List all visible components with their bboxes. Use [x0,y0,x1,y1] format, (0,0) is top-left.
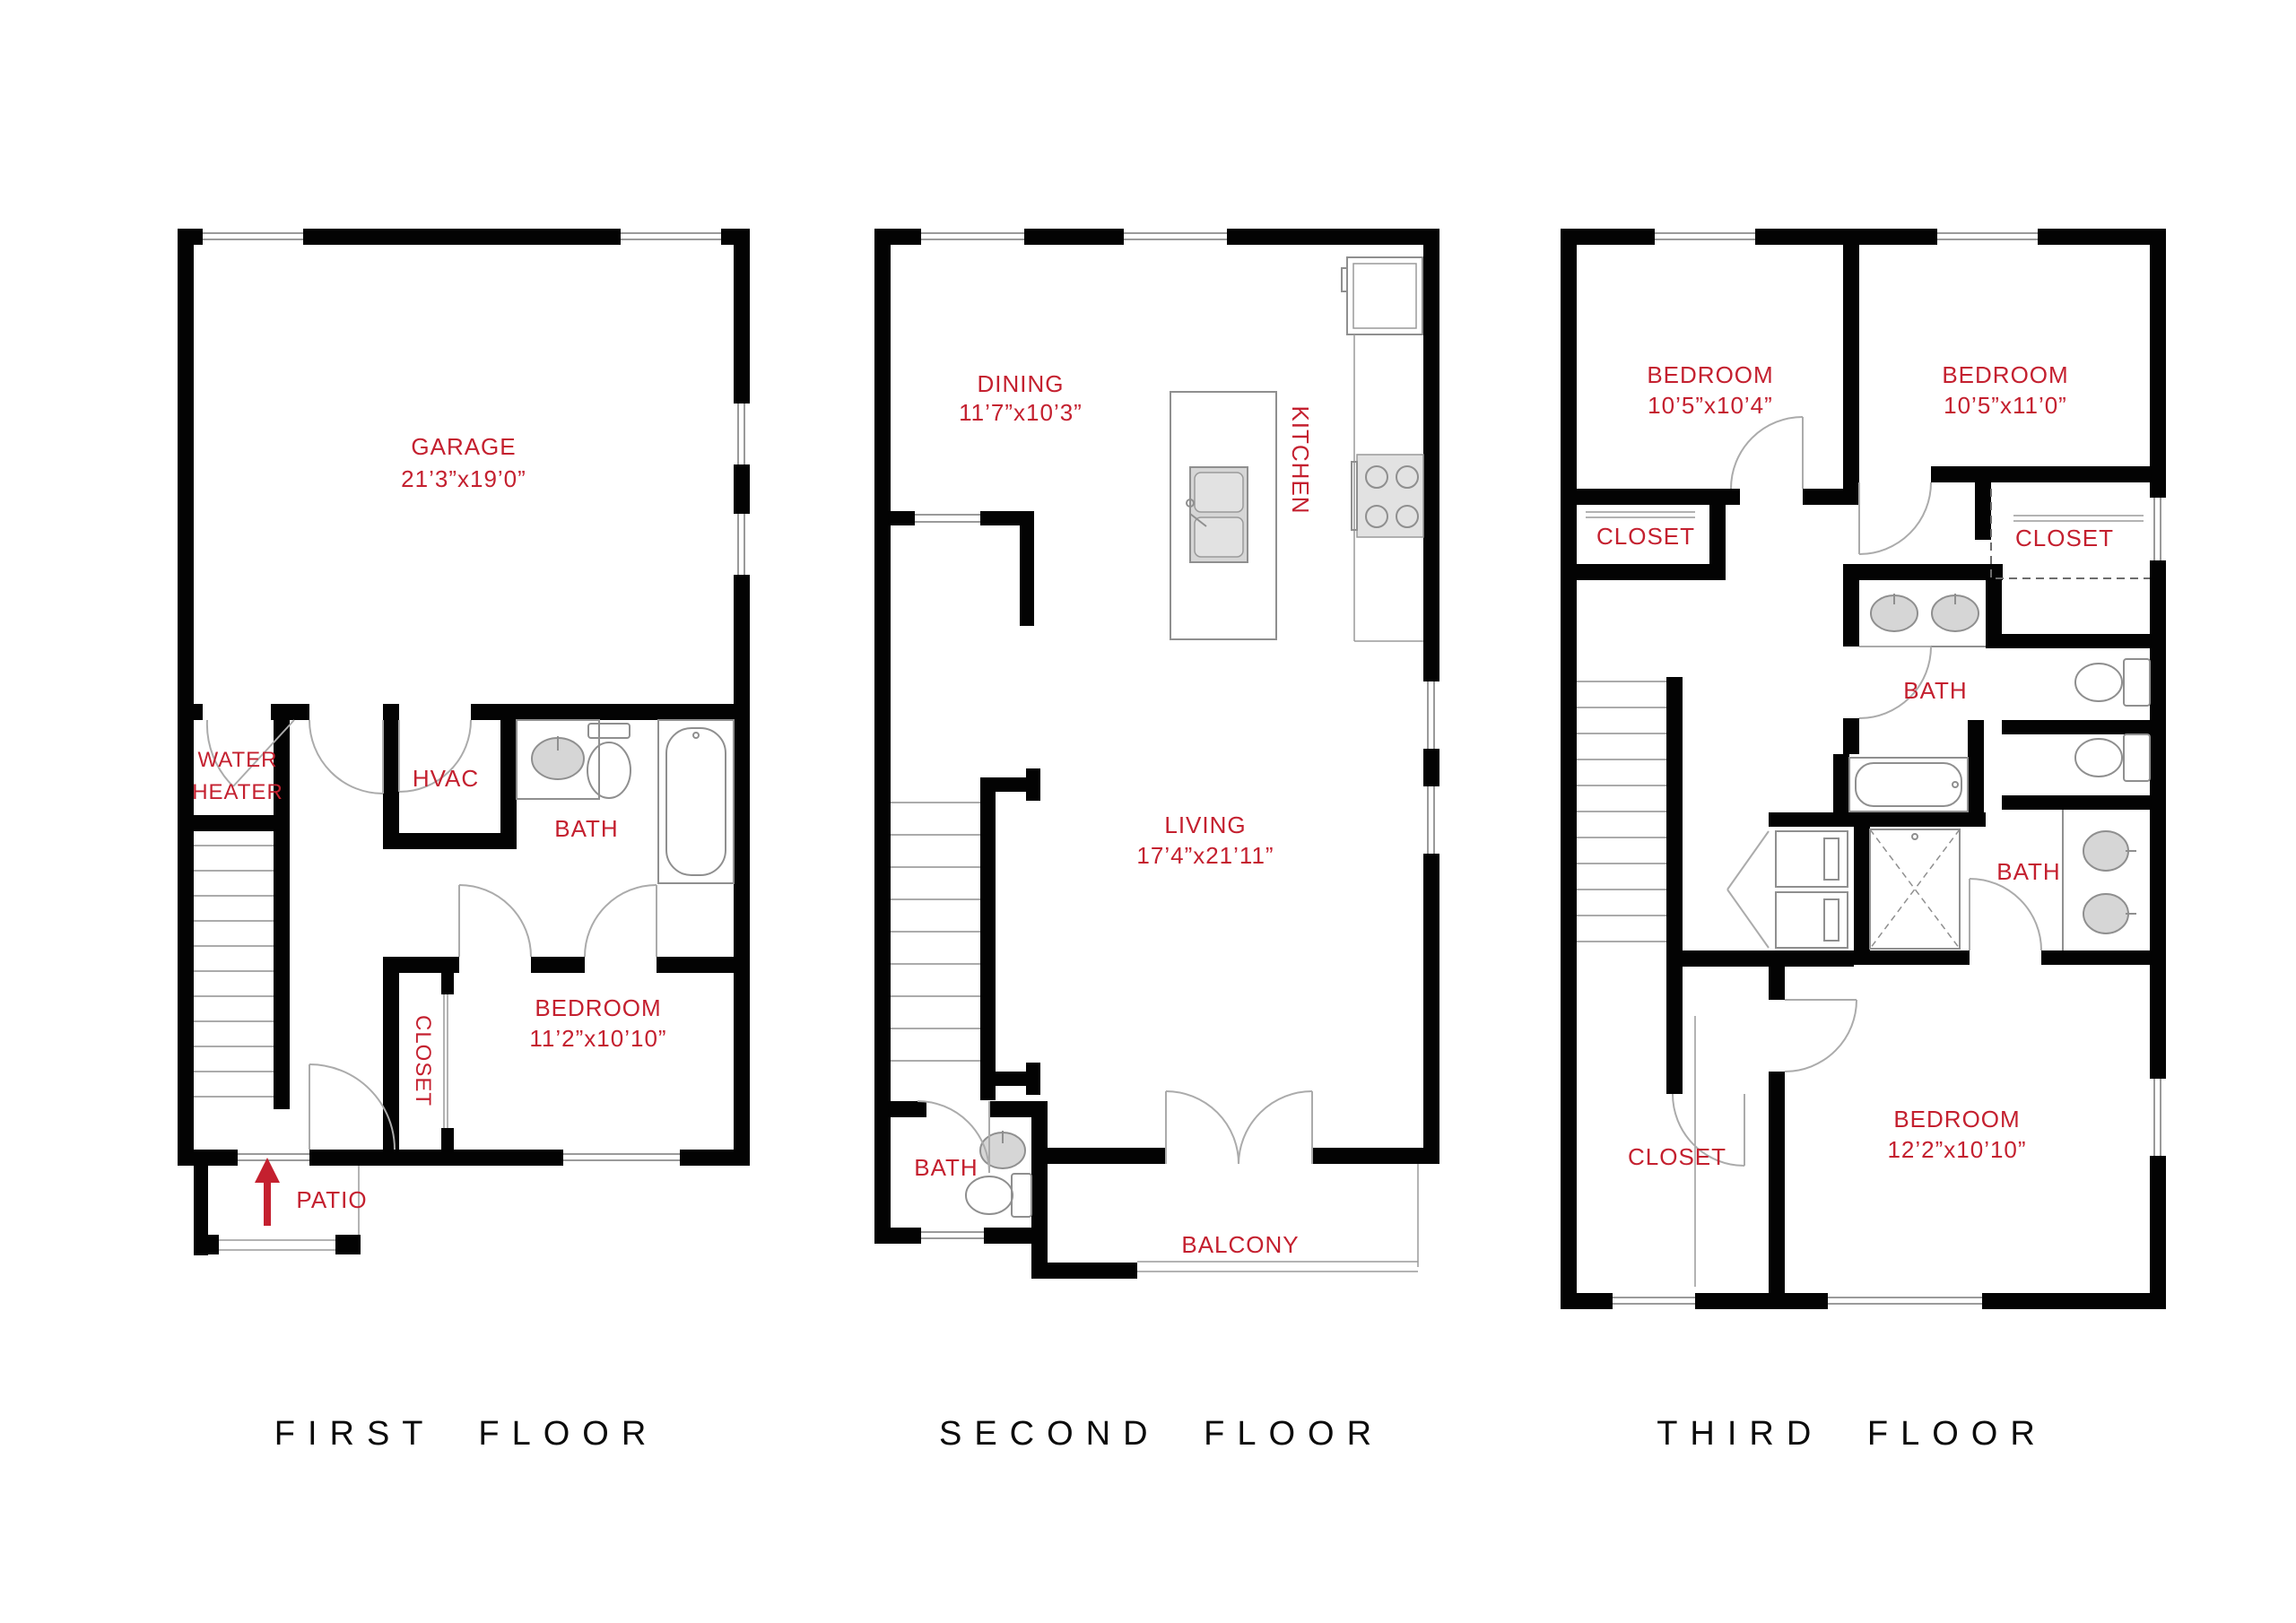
garage-label: GARAGE [411,433,516,460]
kitchen-label: KITCHEN [1287,405,1314,514]
first-floor-fixtures [219,720,734,1250]
garage-dims: 21’3”x19’0” [401,465,526,492]
bedroom-right-label: BEDROOM [1942,361,2068,388]
living-dims: 17’4”x21’11” [1136,842,1274,869]
third-floor-title: THIRD FLOOR [1657,1415,2048,1454]
first-floor-stairs [194,846,274,1097]
bedroom-left-dims: 10’5”x10’4” [1648,392,1773,419]
living-label: LIVING [1164,811,1246,838]
hvac-label: HVAC [413,765,479,792]
closet-label-f1: CLOSET [411,1015,435,1107]
bedroom-left-label: BEDROOM [1647,361,1773,388]
bath-label-f2: BATH [914,1154,978,1181]
closet-walkin-label: CLOSET [2015,525,2114,551]
closet-left-label: CLOSET [1596,523,1695,550]
water-heater-label-line2: HEATER [192,780,283,804]
bedroom-dims-f1: 11’2”x10’10” [529,1025,666,1052]
balcony-label: BALCONY [1181,1231,1299,1258]
bedroom-label-f1: BEDROOM [535,994,661,1021]
water-heater-label-line1: WATER [198,748,278,772]
first-floor-plan: GARAGE 21’3”x19’0” WATER HEATER HVAC BAT… [178,229,752,1260]
dining-label: DINING [978,370,1065,397]
patio-label: PATIO [296,1186,367,1213]
dining-dims: 11’7”x10’3” [959,399,1083,426]
third-floor-plan: BEDROOM 10’5”x10’4” BEDROOM 10’5”x11’0” … [1561,229,2166,1309]
second-floor-title: SECOND FLOOR [939,1415,1384,1454]
bedroom-bottom-label: BEDROOM [1893,1106,2020,1133]
first-floor-title: FIRST FLOOR [274,1415,659,1454]
first-floor-walls [178,229,750,1255]
patio-arrow [255,1158,280,1226]
closet-bottom-label: CLOSET [1628,1143,1726,1170]
second-floor-plan: DINING 11’7”x10’3” KITCHEN LIVING 17’4”x… [874,229,1439,1309]
bedroom-bottom-dims: 12’2”x10’10” [1887,1136,2026,1163]
second-floor-stairs [891,803,980,1061]
bath-upper-label: BATH [1903,677,1967,704]
third-floor-stairs [1577,681,1666,942]
bath-label-f1: BATH [554,815,618,842]
bedroom-right-dims: 10’5”x11’0” [1944,392,2067,419]
bath-lower-label: BATH [1996,858,2060,885]
